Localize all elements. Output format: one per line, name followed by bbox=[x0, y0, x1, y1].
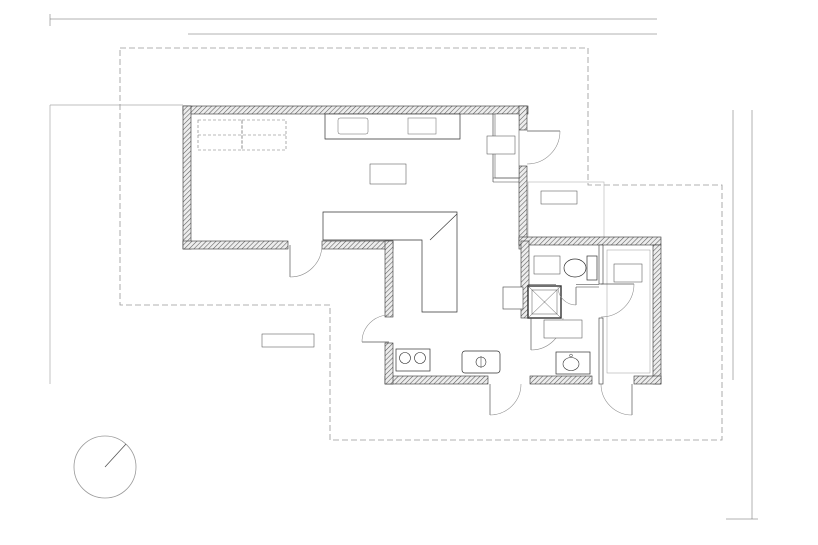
deck-door1-arc bbox=[290, 245, 322, 277]
entrance-door-arc bbox=[527, 131, 560, 164]
bedroom-door-arc bbox=[601, 284, 634, 317]
dimension-lines bbox=[50, 14, 758, 519]
floor-plan-sheet bbox=[0, 0, 818, 545]
wall-upper-bottom-b bbox=[322, 241, 393, 249]
south-door2-arc bbox=[601, 384, 632, 415]
wall-upper-right-a bbox=[519, 106, 527, 130]
partition-bedroom-b bbox=[599, 318, 603, 384]
room-label-wood-deck bbox=[262, 334, 314, 347]
wall-lower-left-a bbox=[385, 241, 393, 317]
wall-upper-right-b bbox=[519, 166, 527, 249]
wall-lower-bottom-c bbox=[634, 376, 661, 384]
washbasin bbox=[556, 352, 590, 374]
wall-lower-left-b bbox=[385, 343, 393, 384]
toilet bbox=[564, 256, 597, 280]
center-table bbox=[462, 351, 500, 373]
north-arrow bbox=[74, 436, 136, 498]
wall-lower-top bbox=[519, 237, 661, 245]
floor-plan-drawing bbox=[0, 0, 818, 545]
room-label-bedroom bbox=[614, 264, 642, 282]
wall-lower-bottom-b bbox=[530, 376, 592, 384]
room-label-ldk bbox=[370, 164, 406, 184]
cooktop bbox=[396, 349, 430, 371]
porch-slab bbox=[528, 182, 604, 240]
room-label-washroom bbox=[544, 320, 582, 338]
south-door1-arc bbox=[490, 384, 521, 415]
north-arrow-needle bbox=[105, 444, 126, 467]
wall-lower-bottom-a bbox=[385, 376, 488, 384]
shower-unit bbox=[528, 286, 561, 318]
room-label-entrance bbox=[487, 136, 515, 154]
kitchen-wall-counter bbox=[325, 114, 460, 139]
wall-upper-left bbox=[183, 106, 191, 249]
partition-bedroom-a bbox=[599, 245, 603, 284]
deck-door2-arc bbox=[362, 315, 389, 342]
wall-upper-top bbox=[183, 106, 528, 114]
storage-dashed-outline bbox=[198, 120, 286, 150]
wall-lower-right bbox=[653, 245, 661, 384]
wall-upper-bottom-a bbox=[183, 241, 288, 249]
room-label-porch bbox=[541, 191, 577, 204]
loft-ladder bbox=[503, 287, 523, 309]
wood-deck-outline bbox=[50, 105, 183, 384]
room-label-wc bbox=[534, 256, 560, 274]
